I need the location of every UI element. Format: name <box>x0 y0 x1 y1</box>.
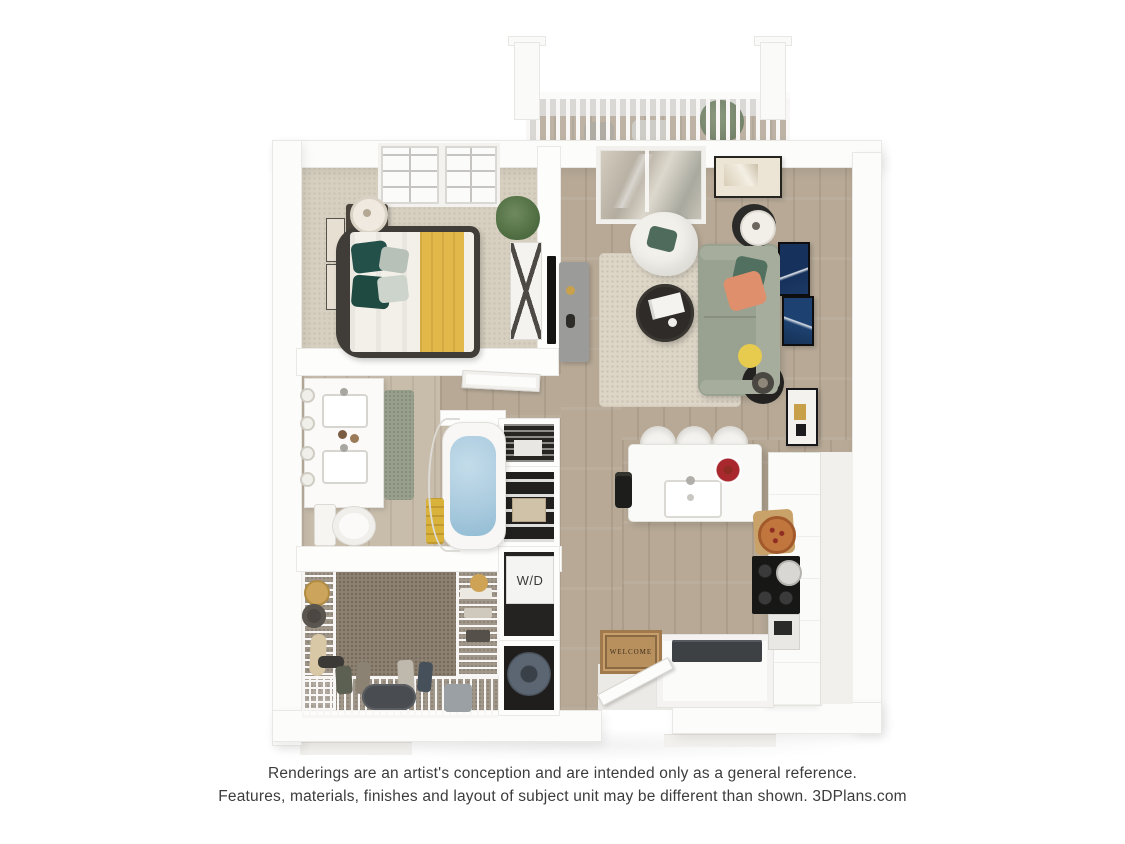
art-gold-block <box>794 404 806 420</box>
faucet-2 <box>340 444 348 452</box>
wall-art-blue-2 <box>782 296 814 346</box>
sofa-cushion-seam <box>704 316 756 318</box>
sink-drain <box>687 494 694 501</box>
smart-speaker <box>615 472 632 508</box>
tv-console <box>559 262 589 362</box>
closet-duffel-bag <box>362 684 416 710</box>
faucet-1 <box>340 388 348 396</box>
window-panes <box>383 148 437 202</box>
island-faucet <box>686 476 695 485</box>
closet-shelf-item-3 <box>466 630 490 642</box>
console-decor-vase <box>566 314 575 328</box>
bedroom-plant <box>496 196 540 240</box>
vanity-soap-1 <box>338 430 347 439</box>
bedroom-window-2 <box>442 143 500 207</box>
bedroom-window-1 <box>378 143 442 207</box>
disclaimer: Renderings are an artist's conception an… <box>0 762 1125 808</box>
toilet-bowl <box>332 506 376 546</box>
side-table-lamp-finial <box>752 222 760 230</box>
closet-clothes-1 <box>335 665 353 694</box>
exterior-step-entry <box>664 734 776 747</box>
shower-curtain-rod <box>428 418 460 552</box>
closet-shelf-item-2 <box>464 608 492 618</box>
living-wall-art <box>714 156 782 198</box>
console-decor-gold <box>566 286 575 295</box>
wall-right <box>852 152 882 732</box>
art-black-block <box>796 424 806 436</box>
kitchen-tall-cabinets <box>820 452 853 704</box>
bed-pillow-sage-1 <box>378 246 409 274</box>
disclaimer-line-1: Renderings are an artist's conception an… <box>0 762 1125 785</box>
refrigerator <box>672 640 762 662</box>
art-abstract-shape <box>724 164 758 186</box>
bedroom-console-table <box>510 242 542 340</box>
closet-round-box <box>470 574 488 592</box>
disclaimer-line-2: Features, materials, finishes and layout… <box>0 785 1125 808</box>
kettle <box>776 560 802 586</box>
coffee-table-vase <box>668 318 677 327</box>
floor-lamp-bulb <box>758 378 768 388</box>
window-panes <box>447 148 495 202</box>
washer-dryer-label: W/D <box>506 556 554 604</box>
closet-hat-tan <box>304 580 330 606</box>
closet-hat-gray <box>302 604 326 628</box>
sliding-door-reflection <box>606 154 686 208</box>
bed-yellow-blanket <box>420 232 464 352</box>
floor-plan-stage: W/D <box>0 0 1125 844</box>
linen-closet-box <box>512 498 546 522</box>
wall-top <box>272 140 882 168</box>
exterior-step-left <box>300 742 412 755</box>
vacuum-unit <box>507 652 551 696</box>
wall-sconce-1 <box>300 388 315 403</box>
vanity-sink-2 <box>322 450 368 484</box>
coffee-maker-body <box>774 621 792 635</box>
bath-mat <box>384 390 414 500</box>
hvac-vent-unit <box>514 440 542 456</box>
closet-clothes-4 <box>417 661 434 692</box>
closet-coat <box>309 634 327 677</box>
wall-art-blue-1 <box>778 242 810 296</box>
balcony-post-right <box>760 42 786 120</box>
sliding-glass-door <box>596 146 706 224</box>
wall-left <box>272 140 302 746</box>
wall-art-gold <box>786 388 818 446</box>
sofa-pillow-yellow <box>738 344 762 368</box>
vanity-sink-1 <box>322 394 368 428</box>
bed-pillow-sage-2 <box>377 275 410 304</box>
balcony-post-left <box>514 42 540 120</box>
wall-sconce-4 <box>300 472 315 487</box>
fruit-bowl <box>714 456 742 484</box>
lamp-finial <box>363 209 371 217</box>
vanity-soap-2 <box>350 434 359 443</box>
wall-sconce-2 <box>300 416 315 431</box>
coffee-maker <box>768 614 800 650</box>
closet-tote-bag <box>444 684 472 712</box>
wall-mounted-tv <box>547 256 556 344</box>
wall-sconce-3 <box>300 446 315 461</box>
pizza <box>758 516 796 554</box>
